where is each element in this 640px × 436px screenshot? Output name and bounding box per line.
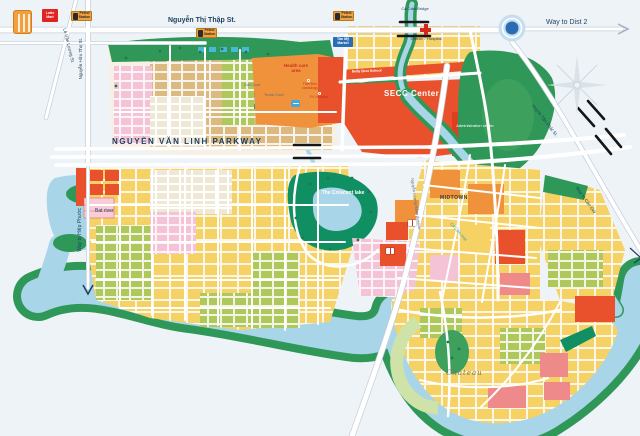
crescent-lake-label: The Crescent lake <box>320 191 366 197</box>
administration-center-label: Administration center <box>455 124 495 128</box>
bridge-label-ca-cam: Cả Cấm Bridge <box>399 7 431 11</box>
road-label-nguyen-van-linh: NGUYỄN VĂN LINH PARKWAY <box>112 138 263 147</box>
school-book-icon <box>386 248 394 254</box>
lotte-mart-badge: Lotte Mart <box>42 9 58 22</box>
roundabout <box>499 15 526 42</box>
road-label-nguyen-thi-thap: Nguyễn Thị Thập St. <box>168 17 236 25</box>
tan-my-market-badge: Tân Mỹ Market <box>333 37 353 47</box>
map-canvas: Lotte Mart Petrol Station Petrol Station… <box>0 0 640 436</box>
road-label-way-to-dist-2: Way to Dist 2 <box>546 19 587 27</box>
district-7-hospital-label: District 7 Hospital <box>408 37 444 41</box>
road-label-nguyen-huu-tho: Nguyễn Hữu Thọ St. <box>79 38 84 79</box>
health-care-area-label: Health care area <box>279 64 313 74</box>
golf-court-label: Golf Court <box>244 84 260 88</box>
map-base-art <box>0 0 640 436</box>
tam-duc-cardiology-label: Tâm Đức cardiology <box>296 83 324 91</box>
petrol-station-badge: Petrol Station <box>71 11 92 21</box>
secc-center-label: SECC Center <box>384 90 439 99</box>
fuel-pump-icon <box>335 13 340 20</box>
swimming-pool-icon <box>291 100 300 107</box>
legend-box <box>13 10 32 34</box>
road-label-way-to-hiep-phuoc: Way to Hiệp Phước <box>78 208 84 252</box>
fuel-pump-icon <box>198 30 203 37</box>
petrol-station-badge: Petrol Station <box>333 11 354 21</box>
chateau-label: Chateau <box>446 370 483 378</box>
bat-river-label: Bat river <box>95 209 114 215</box>
petrol-station-badge: Petrol Station <box>196 28 217 38</box>
school-book-icon <box>408 220 416 226</box>
fuel-pump-icon <box>73 13 78 20</box>
hospital-cross-icon <box>420 24 431 35</box>
fv-hospital-label: FV Hospital <box>310 96 328 100</box>
midtown-label: MIDTOWN <box>440 196 468 202</box>
tennis-court-label: Tennis Court <box>264 94 284 98</box>
